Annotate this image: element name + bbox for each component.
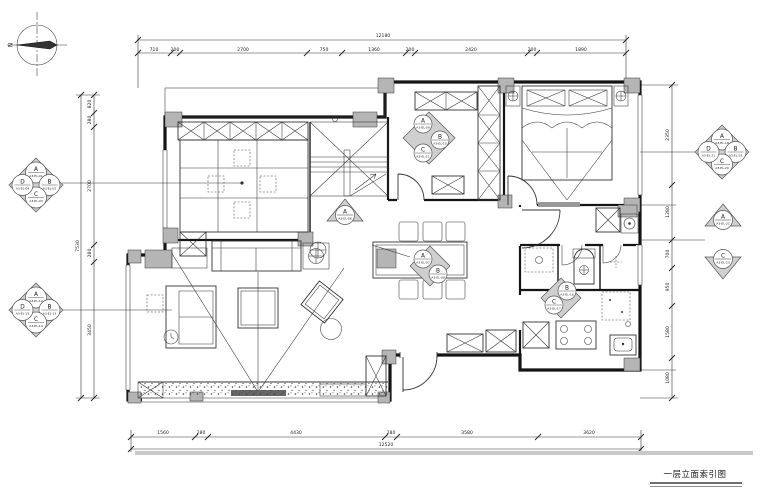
dimension-right: 2350 1280 700 950 1580 1080: [640, 82, 678, 401]
column: [382, 350, 396, 364]
pillow-left-hatch: [527, 90, 565, 106]
fridge-dot: [621, 311, 623, 313]
accent-chair-inner: [305, 285, 339, 319]
vanity-basin-icon: [536, 257, 543, 264]
dim-bottom-total: 12520: [379, 442, 394, 448]
dining-chair: [399, 280, 418, 299]
elev-marker-closet: A A3-EL-09 B A3-EL-10 C A3-EL-11: [403, 112, 455, 164]
north-arrow: N: [6, 12, 67, 78]
door-cut-entry: [400, 352, 437, 358]
dim-right-seg0: 2350: [665, 129, 671, 141]
vanity: [525, 248, 553, 272]
dim-right-seg3: 950: [665, 283, 671, 292]
hall-cabinet-x: [486, 330, 516, 352]
armchair-cushions: [179, 291, 213, 344]
blanket-lines: [522, 108, 612, 200]
marker-ref: A3-EL-03: [29, 199, 43, 203]
washer-dot: [628, 222, 631, 225]
sheet-bottom-bar: [135, 451, 753, 455]
marker-ref: A3-EL-16: [560, 293, 574, 297]
dimension-left: 820 280 2700 280 3450 7530: [75, 92, 100, 401]
marker-letter: B: [565, 286, 569, 292]
window-cut-living: [124, 265, 131, 390]
title-block: 一层立面索引图: [650, 469, 742, 487]
column: [624, 78, 640, 93]
marker-letter: C: [34, 317, 38, 323]
study-cabinet-x: [180, 232, 206, 256]
marker-letter: B: [438, 135, 442, 141]
accent-chair-outer: [301, 281, 343, 323]
dim-right-seg1: 1280: [665, 206, 671, 218]
sofa: [212, 241, 301, 271]
living-storage2: [172, 248, 207, 268]
entry: [403, 330, 516, 392]
closet-top-cabinet-x: [415, 92, 477, 110]
elev-marker-right-a: A A3-EL-22: [705, 204, 741, 230]
marker-ref: A3-EL-13: [43, 312, 57, 316]
dim-bottom-seg2: 4430: [290, 430, 302, 436]
window-cut-study: [162, 150, 169, 228]
dim-top-seg5: 200: [406, 47, 415, 53]
master-bedroom: [506, 86, 628, 207]
dim-left-seg2: 2700: [87, 180, 93, 192]
dim-top-seg3: 750: [320, 47, 329, 53]
marker-letter: C: [552, 300, 556, 306]
tv-sight-lines: [171, 252, 344, 392]
shower-door: [603, 245, 621, 263]
marker-ref: A3-EL-23: [716, 261, 730, 265]
floorplan-drawing: N 12180 710 200 2700 750 1360 200 2420 2…: [0, 0, 760, 496]
marker-letter: A: [34, 167, 38, 173]
staircase: [310, 117, 388, 197]
column: [128, 250, 141, 263]
stairs-diagonals: [310, 122, 388, 196]
dimension-bottom: 1560 280 4430 280 3580 3620 12520: [128, 430, 753, 455]
marker-letter: B: [734, 147, 738, 153]
burner: [561, 326, 568, 333]
leader-dot: [240, 181, 243, 184]
elev-marker-study: A A3-EL-01 B A3-EL-02 C A3-EL-03 D A3-EL…: [9, 158, 63, 212]
study-room: [178, 122, 308, 256]
marker-ref: A3-EL-14: [29, 324, 43, 328]
kitchen: [523, 292, 636, 355]
living-room: [147, 241, 386, 396]
marker-ref: A3-EL-07: [416, 261, 430, 265]
sink-drain: [622, 343, 624, 345]
side-table-mark: [171, 333, 174, 339]
dim-bottom-seg1: 280: [197, 430, 206, 436]
burner: [585, 338, 592, 345]
elev-marker-master: A A3-EL-18 B A3-EL-19 C A3-EL-20 D A3-EL…: [695, 125, 749, 179]
living-storage: [145, 250, 172, 268]
column: [165, 112, 182, 127]
marker-letter: A: [421, 254, 425, 260]
dining-chair: [399, 222, 418, 241]
kitchen-cabinet-x: [523, 322, 549, 348]
window-cut-balcony: [142, 396, 378, 403]
marker-ref: A3-EL-08: [431, 276, 445, 280]
window-cut-shower: [636, 245, 644, 285]
sofa-cushions: [212, 241, 301, 271]
marker-letter: A: [343, 210, 347, 216]
wardrobe-strip-x: [178, 122, 308, 140]
fridge-dot: [609, 299, 611, 301]
dining-chair: [446, 222, 465, 241]
marker-letter: C: [721, 254, 725, 260]
marker-letter: B: [48, 180, 52, 186]
marker-letter: D: [20, 180, 25, 186]
column: [298, 232, 313, 246]
closet-bench-x: [432, 176, 464, 194]
marker-letter: A: [721, 215, 725, 221]
dim-left-total: 7530: [75, 240, 81, 252]
dim-top-seg2: 2700: [237, 47, 249, 53]
marker-ref: A3-EL-09: [416, 126, 430, 130]
marker-ref: A3-EL-20: [715, 166, 729, 170]
marker-ref: A3-EL-04: [16, 187, 30, 191]
marker-letter: A: [421, 119, 425, 125]
dim-left-seg0: 820: [87, 100, 93, 109]
marker-ref: A3-EL-22: [716, 222, 730, 226]
dim-bottom-seg0: 1560: [157, 430, 169, 436]
dim-top-seg1: 200: [171, 47, 180, 53]
interior-walls: [165, 82, 640, 370]
marker-ref: A3-EL-10: [433, 142, 447, 146]
marker-ref: A3-EL-12: [29, 299, 43, 303]
marker-letter: B: [436, 269, 440, 275]
drawing-title: 一层立面索引图: [663, 469, 726, 480]
roof-overhang: [165, 88, 385, 117]
dim-right-seg2: 700: [665, 250, 671, 259]
marker-ref: A3-EL-21: [702, 154, 716, 158]
balcony: [138, 248, 388, 398]
marker-ref: A3-EL-06: [338, 217, 352, 221]
dim-bottom-seg3: 280: [387, 430, 396, 436]
toilet-door: [562, 245, 582, 265]
marker-ref: A3-EL-01: [29, 174, 43, 178]
window-cut-master: [636, 95, 644, 195]
dim-left-seg1: 280: [87, 116, 93, 125]
marker-letter: C: [720, 159, 724, 165]
dim-right-lines: [640, 85, 678, 398]
marker-letter: C: [34, 192, 38, 198]
pillow-right-hatch: [569, 90, 607, 106]
door-threshold: [538, 202, 580, 207]
balcony-floor: [138, 383, 388, 397]
dim-top-seg0: 710: [150, 47, 159, 53]
bath-hall-door: [522, 210, 560, 248]
dim-right-seg5: 1080: [665, 372, 671, 384]
closet-door: [398, 174, 424, 200]
marker-ref: A3-EL-19: [729, 154, 743, 158]
marker-ref: A3-EL-17: [547, 307, 561, 311]
marker-letter: A: [34, 292, 38, 298]
dim-top-seg4: 1360: [368, 47, 380, 53]
cooktop: [556, 321, 596, 349]
wardrobe-column-dividers: [478, 115, 500, 171]
dim-bottom-seg5: 3620: [583, 430, 595, 436]
laundry-cabinet-x: [596, 208, 620, 232]
marker-ref: A3-EL-11: [416, 155, 430, 159]
elev-marker-living: A A3-EL-12 B A3-EL-13 C A3-EL-14 D A3-EL…: [9, 283, 63, 337]
dim-left-seg3: 280: [87, 249, 93, 258]
column: [353, 112, 377, 127]
dim-top-seg8: 1890: [575, 47, 587, 53]
column: [163, 228, 178, 243]
dining-chair: [446, 280, 465, 299]
elev-marker-right-c: C A3-EL-23: [705, 250, 741, 280]
fridge: [602, 292, 630, 320]
round-stool: [321, 319, 342, 340]
elev-marker-stairs: A A3-EL-06: [327, 199, 363, 225]
shoe-cabinet-x: [447, 334, 483, 352]
dim-bottom-seg4: 3580: [461, 430, 473, 436]
dim-top-seg6: 2420: [465, 47, 477, 53]
marker-letter: C: [421, 148, 425, 154]
floor-plan: [124, 78, 644, 404]
dim-left-seg4: 3450: [87, 324, 93, 336]
wall-niche: [147, 295, 163, 312]
dim-top-total: 12180: [376, 33, 391, 39]
marker-ref: A3-EL-15: [16, 312, 30, 316]
north-label: N: [6, 43, 12, 47]
dim-right-seg4: 1580: [665, 326, 671, 338]
marker-ref: A3-EL-18: [715, 141, 729, 145]
entry-door: [403, 356, 437, 392]
dining-chair: [423, 222, 442, 241]
marker-letter: D: [20, 305, 25, 311]
marker-letter: D: [706, 147, 711, 153]
dim-top-seg7: 200: [528, 47, 537, 53]
marker-ref: A3-EL-02: [43, 187, 57, 191]
marker-letter: A: [720, 134, 724, 140]
burner: [561, 338, 568, 345]
burner: [585, 326, 592, 333]
column: [624, 358, 640, 371]
kitchen-outlet-icon: [626, 322, 631, 327]
accent-chair: [301, 281, 343, 323]
marker-letter: B: [48, 305, 52, 311]
column: [378, 78, 394, 93]
